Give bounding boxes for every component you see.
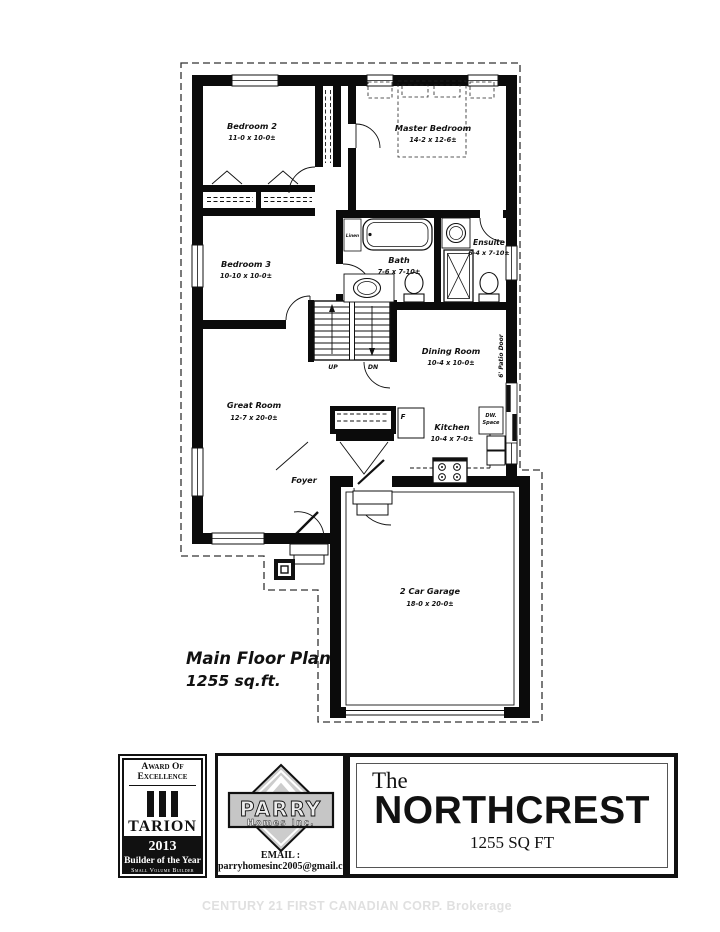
foyer-angled-wall: [276, 442, 308, 470]
svg-text:PARRY: PARRY: [239, 797, 322, 821]
label-patio-door: 6' Patio Door: [498, 333, 505, 378]
ensuite-toilet-symbol: [479, 273, 499, 303]
front-door-leaf: [296, 512, 318, 534]
ensuite-sink-symbol: [442, 218, 470, 248]
room-dims-garage: 18-0 x 20-0±: [406, 600, 453, 608]
tarion-award-text: Award Of Excellence: [129, 760, 195, 786]
bathtub-symbol: [363, 219, 432, 250]
plan-title-block: The NORTHCREST 1255 SQ FT: [346, 753, 678, 878]
garage-steps: [353, 491, 392, 515]
room-dims-ensuite: 6-4 x 7-10±: [468, 249, 509, 257]
label-dn: DN: [368, 364, 379, 371]
titleblock-name: NORTHCREST: [357, 791, 667, 830]
room-dims-great: 12-7 x 20-0±: [230, 414, 277, 422]
room-dims-bedroom2: 11-0 x 10-0±: [228, 134, 275, 142]
stairs-symbol: [314, 301, 390, 360]
floor-plan-page: Bedroom 2 11-0 x 10-0± Master Bedroom 14…: [0, 0, 720, 932]
front-steps: [290, 544, 328, 564]
tarion-name: TARION: [128, 818, 197, 836]
tarion-title: Builder of the Year: [124, 856, 201, 866]
room-label-ensuite: Ensuite: [473, 238, 505, 247]
bath-toilet-symbol: [404, 273, 424, 303]
tarion-bars-icon: [147, 791, 178, 817]
label-fridge: F: [401, 413, 406, 421]
master-bed-symbol: [368, 81, 494, 157]
room-label-dining: Dining Room: [422, 346, 481, 356]
label-linen: Linen: [346, 233, 359, 239]
label-dw-line1: DW.: [485, 413, 496, 419]
stove-symbol: [433, 458, 467, 483]
titleblock-prefix: The: [372, 768, 408, 794]
room-label-great: Great Room: [227, 400, 282, 410]
plan-title: Main Floor Plan: [186, 649, 331, 668]
room-label-garage: 2 Car Garage: [400, 586, 461, 596]
room-label-master: Master Bedroom: [395, 123, 472, 133]
parry-homes-logo: PARRY Homes Inc. EMAIL : parryhomesinc20…: [215, 753, 346, 878]
room-dims-master: 14-2 x 12-6±: [409, 136, 456, 144]
garage-door: [346, 711, 504, 716]
room-label-foyer: Foyer: [291, 475, 317, 485]
floor-plan-drawing: Bedroom 2 11-0 x 10-0± Master Bedroom 14…: [0, 0, 720, 745]
parry-diamond-icon: PARRY Homes Inc.: [221, 763, 341, 853]
garage-inner-wall: [346, 492, 514, 705]
tarion-subtitle: Small Volume Builder: [124, 868, 201, 874]
room-dims-dining: 10-4 x 10-0±: [427, 359, 474, 367]
bath-sink-symbol: [344, 274, 394, 302]
walls: [192, 75, 530, 718]
property-line: [181, 63, 542, 722]
parry-email: EMAIL : parryhomesinc2005@gmail.com: [218, 850, 343, 872]
room-dims-kitchen: 10-4 x 7-0±: [431, 435, 474, 443]
plan-sqft: 1255 sq.ft.: [186, 672, 281, 690]
kitchen-sink-cabinet: [487, 436, 505, 465]
patio-door: [506, 383, 517, 443]
label-up: UP: [328, 364, 338, 371]
room-label-kitchen: Kitchen: [434, 422, 469, 432]
label-dw-line2: Space: [483, 420, 501, 426]
room-label-bedroom3: Bedroom 3: [221, 259, 271, 269]
tarion-award-logo: Award Of Excellence TARION 2013 Builder …: [118, 754, 207, 878]
room-label-bedroom2: Bedroom 2: [227, 121, 277, 131]
brokerage-watermark: CENTURY 21 FIRST CANADIAN CORP. Brokerag…: [0, 899, 714, 913]
room-label-bath: Bath: [388, 255, 410, 265]
shower-symbol: [444, 250, 473, 302]
room-dims-bedroom3: 10-10 x 10-0±: [220, 272, 272, 280]
titleblock-sqft: 1255 SQ FT: [357, 833, 667, 853]
porch-post: [274, 559, 295, 580]
tarion-year: 2013: [124, 839, 201, 855]
room-dims-bath: 7-6 x 7-10±: [378, 268, 421, 276]
garage-mandoor-leaf: [358, 460, 384, 484]
